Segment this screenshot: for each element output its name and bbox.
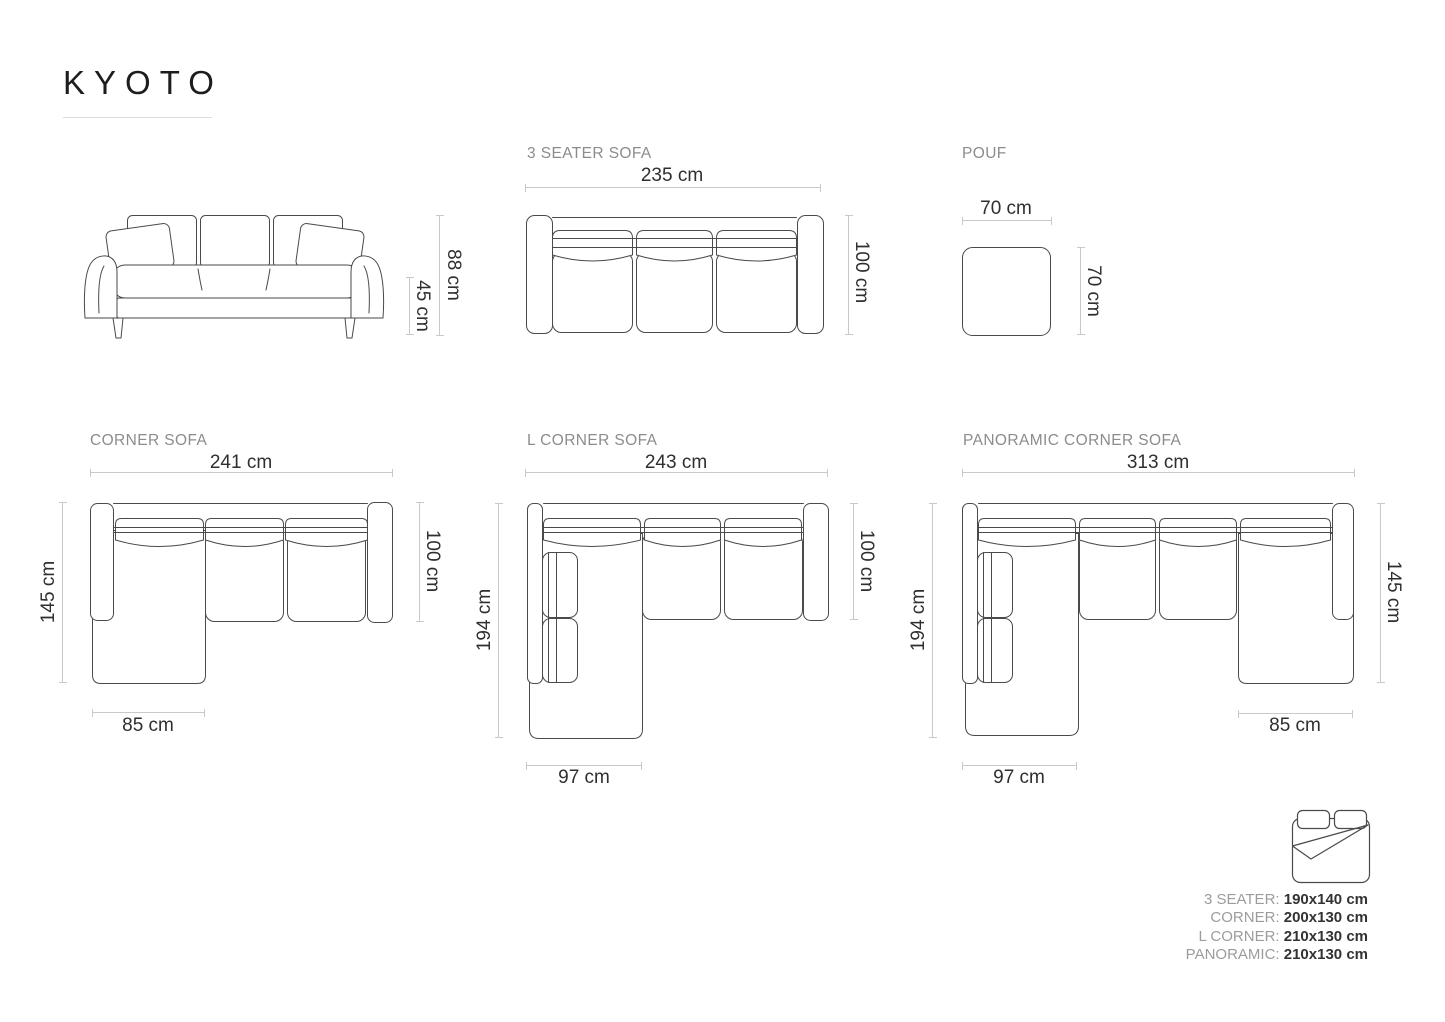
dim-line-front-seat-height (409, 277, 410, 335)
dim-line-3seater-width (525, 187, 821, 188)
bed-size-row: 3 SEATER: 190x140 cm (1186, 891, 1368, 909)
dim-line-l-corner-wing-width (526, 765, 642, 766)
bed-size-label: 3 SEATER: (1204, 891, 1280, 908)
dim-label-l-corner-width: 243 cm (645, 452, 707, 474)
dim-line-panoramic-wing-width (962, 765, 1077, 766)
dim-line-panoramic-chaise-width (1238, 713, 1353, 714)
section-title-corner: CORNER SOFA (90, 432, 207, 450)
l-corner-sofa-top-view-drawing (520, 495, 840, 745)
dim-line-front-height (439, 215, 440, 336)
dim-label-front-height: 88 cm (442, 249, 464, 301)
dim-label-corner-width: 241 cm (210, 452, 272, 474)
dim-label-pouf-depth: 70 cm (1082, 265, 1104, 317)
title-underline (63, 117, 212, 118)
dim-label-l-corner-left-depth: 194 cm (474, 589, 496, 651)
three-seater-top-view-drawing (520, 210, 830, 340)
dim-line-l-corner-right-depth (853, 503, 854, 620)
bed-size-label: PANORAMIC: (1186, 946, 1280, 963)
bed-sizes-legend: 3 SEATER: 190x140 cm CORNER: 200x130 cm … (1186, 891, 1368, 965)
bed-size-row: L CORNER: 210x130 cm (1186, 928, 1368, 946)
page-title: KYOTO (63, 64, 223, 102)
dim-line-corner-right-depth (419, 502, 420, 622)
section-title-l-corner: L CORNER SOFA (527, 432, 657, 450)
bed-size-value: 210x130 cm (1284, 946, 1368, 963)
bed-icon (1285, 803, 1380, 888)
dim-label-panoramic-left-depth: 194 cm (908, 589, 930, 651)
pouf-top-view-drawing (955, 240, 1055, 340)
dim-label-l-corner-wing-width: 97 cm (558, 767, 610, 789)
dim-label-corner-chaise-width: 85 cm (122, 715, 174, 737)
bed-size-value: 200x130 cm (1284, 909, 1368, 926)
bed-size-row: PANORAMIC: 210x130 cm (1186, 946, 1368, 964)
bed-size-label: CORNER: (1210, 909, 1279, 926)
dim-label-3seater-depth: 100 cm (850, 241, 872, 303)
bed-size-value: 190x140 cm (1284, 891, 1368, 908)
l-corner-sofa-lines (528, 504, 829, 739)
bed-size-row: CORNER: 200x130 cm (1186, 909, 1368, 927)
bed-size-label: L CORNER: (1198, 928, 1279, 945)
dim-line-pouf-depth (1080, 247, 1081, 335)
dim-line-panoramic-right-depth (1380, 503, 1381, 683)
dim-label-corner-right-depth: 100 cm (421, 530, 443, 592)
dim-label-l-corner-right-depth: 100 cm (855, 530, 877, 592)
dim-label-panoramic-chaise-width: 85 cm (1269, 715, 1321, 737)
three-seater-lines (527, 216, 824, 334)
section-title-three-seater: 3 SEATER SOFA (527, 145, 652, 163)
dim-line-panoramic-left-depth (932, 503, 933, 738)
section-title-panoramic: PANORAMIC CORNER SOFA (963, 432, 1181, 450)
dim-label-pouf-width: 70 cm (980, 198, 1032, 220)
dim-label-panoramic-right-depth: 145 cm (1382, 561, 1404, 623)
sofa-front-view-lines (84, 216, 383, 339)
pouf-lines (963, 248, 1051, 336)
dim-label-panoramic-wing-width: 97 cm (993, 767, 1045, 789)
dim-label-panoramic-width: 313 cm (1127, 452, 1189, 474)
sofa-front-view-drawing (83, 205, 463, 345)
dim-line-pouf-width (962, 220, 1052, 221)
bed-icon-lines (1293, 811, 1370, 883)
dim-line-l-corner-left-depth (498, 503, 499, 738)
dim-label-3seater-width: 235 cm (641, 165, 703, 187)
bed-size-value: 210x130 cm (1284, 928, 1368, 945)
kyoto-dimension-sheet: KYOTO 3 SEATER SOFA POUF CORNER SOFA L C… (0, 0, 1445, 1022)
section-title-pouf: POUF (962, 145, 1007, 163)
dim-label-front-seat-height: 45 cm (411, 280, 433, 332)
corner-sofa-top-view-drawing (85, 495, 405, 695)
dim-line-corner-left-depth (62, 502, 63, 683)
dim-label-corner-left-depth: 145 cm (38, 561, 60, 623)
panoramic-sofa-lines (963, 504, 1354, 736)
dim-line-corner-chaise-width (92, 712, 205, 713)
dim-line-3seater-depth (848, 215, 849, 335)
corner-sofa-lines (91, 503, 393, 684)
panoramic-sofa-top-view-drawing (955, 495, 1365, 745)
